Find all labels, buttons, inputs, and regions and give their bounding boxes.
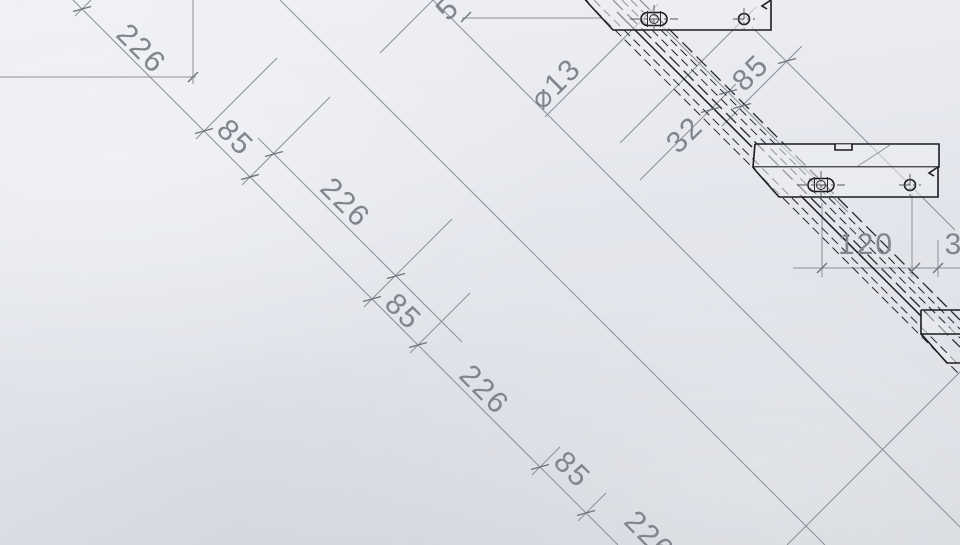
drawing-line xyxy=(787,372,960,545)
dimension-label: 85 xyxy=(210,113,260,163)
dimension-label: 226 xyxy=(314,171,377,234)
tick-mark xyxy=(195,129,213,134)
drawing-line xyxy=(752,27,955,230)
drawing-line xyxy=(433,0,960,527)
step-bracket-middle xyxy=(835,144,852,150)
tick-mark xyxy=(531,465,549,470)
tick-mark xyxy=(387,274,405,279)
dimension-label: 120 xyxy=(838,228,894,261)
tick-mark xyxy=(241,175,259,180)
dimension-label: 3 xyxy=(945,228,960,261)
drawing-line xyxy=(380,0,433,53)
dimension-label: 85 xyxy=(378,287,428,337)
tick-mark xyxy=(577,511,595,516)
tick-mark xyxy=(778,59,796,64)
step-bracket-top xyxy=(586,0,771,30)
tick-mark xyxy=(363,297,381,302)
drawing-canvas: 2268522685226852265⌀1385321203 xyxy=(0,0,960,545)
dimension-label: ⌀13 xyxy=(524,52,588,116)
tick-mark xyxy=(73,7,91,12)
step-bracket-bottom-partial xyxy=(921,334,960,363)
tick-mark xyxy=(265,152,283,157)
dimension-label: 5 xyxy=(430,0,467,27)
tick-mark xyxy=(409,343,427,348)
cad-drawing-viewport[interactable]: 2268522685226852265⌀1385321203 xyxy=(0,0,960,545)
drawing-line xyxy=(578,493,606,521)
dimension-label: 226 xyxy=(110,17,173,80)
dimension-label: 226 xyxy=(618,504,681,545)
dimension-label: 226 xyxy=(453,358,516,421)
